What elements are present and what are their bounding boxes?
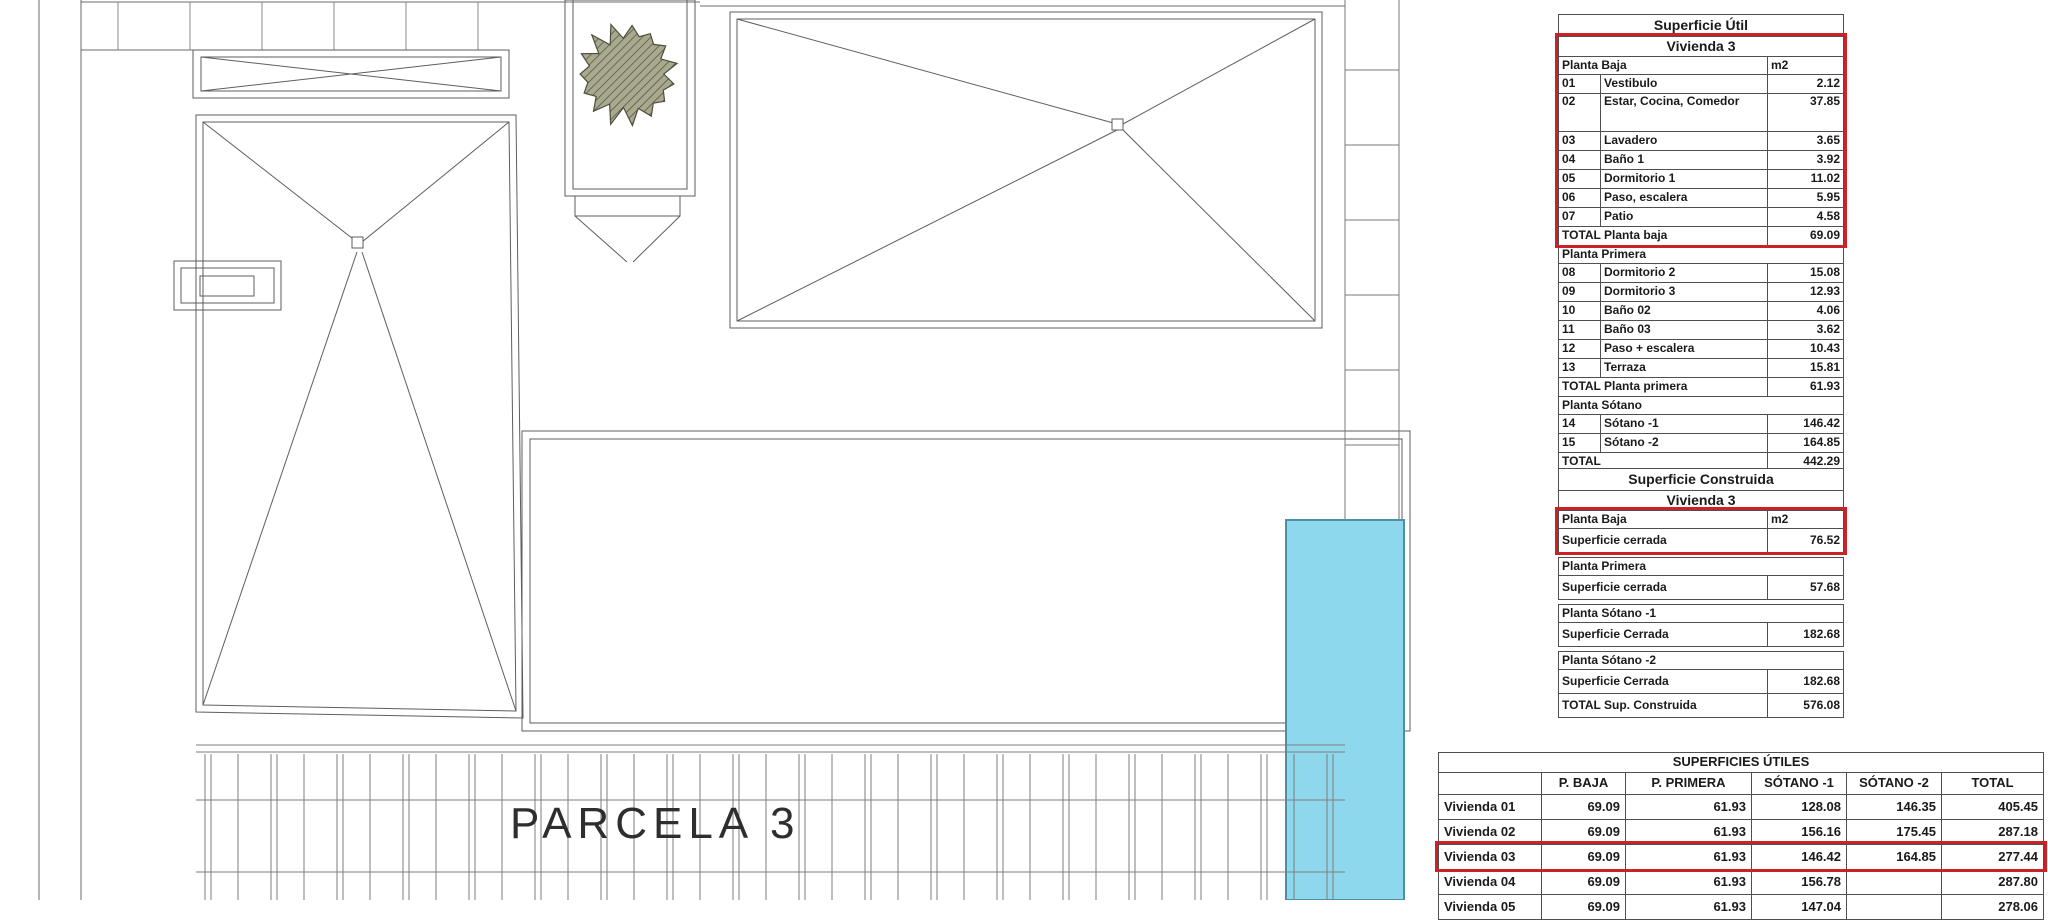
room-label: Sótano -2 (1601, 434, 1768, 453)
vivienda-label: Vivienda 03 (1439, 845, 1542, 870)
column-header: TOTAL (1942, 773, 2044, 795)
room-area: 11.02 (1767, 170, 1843, 189)
vivienda-area: 61.93 (1626, 795, 1752, 820)
superficie-construida-panel: Superficie Construida Vivienda 3 Planta … (1558, 468, 1844, 718)
room-row: 02Estar, Cocina, Comedor37.85 (1559, 94, 1844, 132)
unit-cell: m2 (1768, 511, 1844, 529)
room-number: 11 (1559, 321, 1601, 340)
room-number: 03 (1559, 132, 1601, 151)
room-number: 08 (1559, 264, 1601, 283)
room-row: 10Baño 024.06 (1559, 302, 1844, 321)
superficies-utiles-title: SUPERFICIES ÚTILES (1439, 753, 2044, 773)
room-row: 04Baño 13.92 (1559, 151, 1844, 170)
room-area: 2.12 (1767, 75, 1843, 94)
room-label: Dormitorio 2 (1601, 264, 1768, 283)
room-row: 13Terraza15.81 (1559, 359, 1844, 378)
room-row: 06Paso, escalera5.95 (1559, 189, 1844, 208)
vivienda-area: 61.93 (1626, 895, 1752, 920)
vivienda-area: 61.93 (1626, 870, 1752, 895)
vivienda-area (1847, 870, 1942, 895)
vivienda-area: 147.04 (1752, 895, 1847, 920)
vivienda-area: 69.09 (1542, 895, 1626, 920)
value-row: Superficie cerrada76.52 (1559, 529, 1844, 553)
section-label: Planta Sótano (1559, 397, 1844, 415)
room-row: 12Paso + escalera10.43 (1559, 340, 1844, 359)
column-header: P. PRIMERA (1626, 773, 1752, 795)
vivienda-area: 69.09 (1542, 870, 1626, 895)
room-row: 15Sótano -2164.85 (1559, 434, 1844, 453)
section-label: Planta Sótano -2 (1559, 652, 1844, 670)
room-area: 4.06 (1767, 302, 1843, 321)
section-row: Planta Sótano -2 (1559, 652, 1844, 670)
pool (1286, 520, 1404, 900)
main-roof (730, 12, 1322, 328)
room-area: 15.08 (1767, 264, 1843, 283)
vivienda-area: 146.35 (1847, 795, 1942, 820)
room-label: Baño 1 (1601, 151, 1768, 170)
tree (580, 25, 677, 126)
vivienda-area: 277.44 (1942, 845, 2044, 870)
room-area: 10.43 (1767, 340, 1843, 359)
parcel-boundary (39, 0, 1345, 900)
top-hatch-ticks (118, 2, 478, 50)
total-row: TOTAL Planta primera61.93 (1559, 378, 1844, 397)
room-row: 11Baño 033.62 (1559, 321, 1844, 340)
total-label: TOTAL Planta baja (1559, 227, 1768, 246)
vivienda-area: 175.45 (1847, 820, 1942, 845)
value-area: 57.68 (1768, 576, 1844, 600)
section-row: Planta Sótano (1559, 397, 1844, 415)
room-row: 08Dormitorio 215.08 (1559, 264, 1844, 283)
right-band (1345, 0, 1399, 520)
room-number: 12 (1559, 340, 1601, 359)
room-label: Estar, Cocina, Comedor (1601, 94, 1768, 132)
room-number: 10 (1559, 302, 1601, 321)
section-row: Planta Sótano -1 (1559, 605, 1844, 623)
site-plan: PARCELA 3 (0, 0, 1450, 900)
room-row: 05Dormitorio 111.02 (1559, 170, 1844, 189)
superficie-construida-subtitle: Vivienda 3 (1559, 491, 1844, 511)
parcel-label: PARCELA 3 (510, 799, 800, 848)
vivienda-row: Vivienda 0569.0961.93147.04278.06 (1439, 895, 2044, 920)
room-area: 3.62 (1767, 321, 1843, 340)
value-row: Superficie cerrada57.68 (1559, 576, 1844, 600)
section-label: Planta Baja (1559, 57, 1768, 75)
vivienda-area: 69.09 (1542, 820, 1626, 845)
value-row: Superficie Cerrada182.68 (1559, 623, 1844, 647)
room-label: Baño 03 (1601, 321, 1768, 340)
section-row: Planta Bajam2 (1559, 511, 1844, 529)
room-label: Paso, escalera (1601, 189, 1768, 208)
value-area: 76.52 (1768, 529, 1844, 553)
room-number: 05 (1559, 170, 1601, 189)
vivienda-area: 156.78 (1752, 870, 1847, 895)
vivienda-area: 278.06 (1942, 895, 2044, 920)
room-number: 01 (1559, 75, 1601, 94)
vivienda-area: 164.85 (1847, 845, 1942, 870)
total-area: 61.93 (1767, 378, 1843, 397)
room-label: Lavadero (1601, 132, 1768, 151)
room-number: 15 (1559, 434, 1601, 453)
room-row: 01Vestibulo2.12 (1559, 75, 1844, 94)
vivienda-area: 287.18 (1942, 820, 2044, 845)
vivienda-area: 146.42 (1752, 845, 1847, 870)
column-header: P. BAJA (1542, 773, 1626, 795)
vivienda-area: 128.08 (1752, 795, 1847, 820)
vivienda-row: Vivienda 0469.0961.93156.78287.80 (1439, 870, 2044, 895)
room-label: Dormitorio 1 (1601, 170, 1768, 189)
vivienda-row: Vivienda 0169.0961.93128.08146.35405.45 (1439, 795, 2044, 820)
room-area: 164.85 (1767, 434, 1843, 453)
vivienda-area: 69.09 (1542, 795, 1626, 820)
value-row: TOTAL Sup. Construida576.08 (1559, 694, 1844, 718)
room-label: Baño 02 (1601, 302, 1768, 321)
room-area: 3.65 (1767, 132, 1843, 151)
vivienda-label: Vivienda 04 (1439, 870, 1542, 895)
room-number: 04 (1559, 151, 1601, 170)
section-row: Planta Primera (1559, 558, 1844, 576)
superficie-construida-table: Superficie Construida Vivienda 3 Planta … (1558, 468, 1844, 718)
value-label: Superficie cerrada (1559, 529, 1768, 553)
room-label: Dormitorio 3 (1601, 283, 1768, 302)
room-area: 3.92 (1767, 151, 1843, 170)
section-label: Planta Sótano -1 (1559, 605, 1844, 623)
pergola-rect (193, 50, 509, 98)
room-row: 14Sótano -1146.42 (1559, 415, 1844, 434)
room-number: 06 (1559, 189, 1601, 208)
vivienda-area: 69.09 (1542, 845, 1626, 870)
room-label: Sótano -1 (1601, 415, 1768, 434)
room-number: 14 (1559, 415, 1601, 434)
vivienda-area: 405.45 (1942, 795, 2044, 820)
superficies-utiles-panel: SUPERFICIES ÚTILES P. BAJAP. PRIMERASÓTA… (1438, 752, 2044, 920)
superficie-util-panel: Superficie Útil Vivienda 3 Planta Bajam2… (1558, 14, 1844, 472)
superficie-construida-title: Superficie Construida (1559, 469, 1844, 491)
room-label: Vestibulo (1601, 75, 1768, 94)
value-area: 182.68 (1768, 623, 1844, 647)
value-label: TOTAL Sup. Construida (1559, 694, 1768, 718)
vivienda-area: 287.80 (1942, 870, 2044, 895)
section-label: Planta Primera (1559, 246, 1844, 264)
section-label: Planta Primera (1559, 558, 1844, 576)
vivienda-area (1847, 895, 1942, 920)
room-number: 07 (1559, 208, 1601, 227)
column-header: SÓTANO -2 (1847, 773, 1942, 795)
room-number: 13 (1559, 359, 1601, 378)
vivienda-area: 156.16 (1752, 820, 1847, 845)
vivienda-row: Vivienda 0269.0961.93156.16175.45287.18 (1439, 820, 2044, 845)
room-area: 37.85 (1767, 94, 1843, 132)
section-label: Planta Baja (1559, 511, 1768, 529)
room-number: 02 (1559, 94, 1601, 132)
room-number: 09 (1559, 283, 1601, 302)
value-area: 576.08 (1768, 694, 1844, 718)
vivienda-area: 61.93 (1626, 820, 1752, 845)
room-area: 12.93 (1767, 283, 1843, 302)
left-roof (196, 115, 523, 718)
garage-rect (174, 261, 281, 310)
room-label: Patio (1601, 208, 1768, 227)
column-header: SÓTANO -1 (1752, 773, 1847, 795)
unit-cell: m2 (1767, 57, 1843, 75)
vivienda-row: Vivienda 0369.0961.93146.42164.85277.44 (1439, 845, 2044, 870)
value-label: Superficie Cerrada (1559, 623, 1768, 647)
room-row: 07Patio4.58 (1559, 208, 1844, 227)
value-label: Superficie Cerrada (1559, 670, 1768, 694)
total-area: 69.09 (1767, 227, 1843, 246)
room-row: 09Dormitorio 312.93 (1559, 283, 1844, 302)
section-row: Planta Bajam2 (1559, 57, 1844, 75)
vivienda-label: Vivienda 02 (1439, 820, 1542, 845)
section-row: Planta Primera (1559, 246, 1844, 264)
room-area: 5.95 (1767, 189, 1843, 208)
superficies-utiles-table: SUPERFICIES ÚTILES P. BAJAP. PRIMERASÓTA… (1438, 752, 2044, 920)
patio (522, 431, 1410, 731)
room-area: 15.81 (1767, 359, 1843, 378)
total-label: TOTAL Planta primera (1559, 378, 1768, 397)
column-header (1439, 773, 1542, 795)
vivienda-area: 61.93 (1626, 845, 1752, 870)
value-area: 182.68 (1768, 670, 1844, 694)
superficie-util-subtitle: Vivienda 3 (1559, 37, 1844, 57)
total-row: TOTAL Planta baja69.09 (1559, 227, 1844, 246)
vivienda-label: Vivienda 01 (1439, 795, 1542, 820)
superficie-util-table: Superficie Útil Vivienda 3 Planta Bajam2… (1558, 14, 1844, 472)
room-area: 146.42 (1767, 415, 1843, 434)
vivienda-label: Vivienda 05 (1439, 895, 1542, 920)
room-row: 03Lavadero3.65 (1559, 132, 1844, 151)
value-label: Superficie cerrada (1559, 576, 1768, 600)
room-label: Paso + escalera (1601, 340, 1768, 359)
room-label: Terraza (1601, 359, 1768, 378)
value-row: Superficie Cerrada182.68 (1559, 670, 1844, 694)
room-area: 4.58 (1767, 208, 1843, 227)
superficie-util-title: Superficie Útil (1559, 15, 1844, 37)
